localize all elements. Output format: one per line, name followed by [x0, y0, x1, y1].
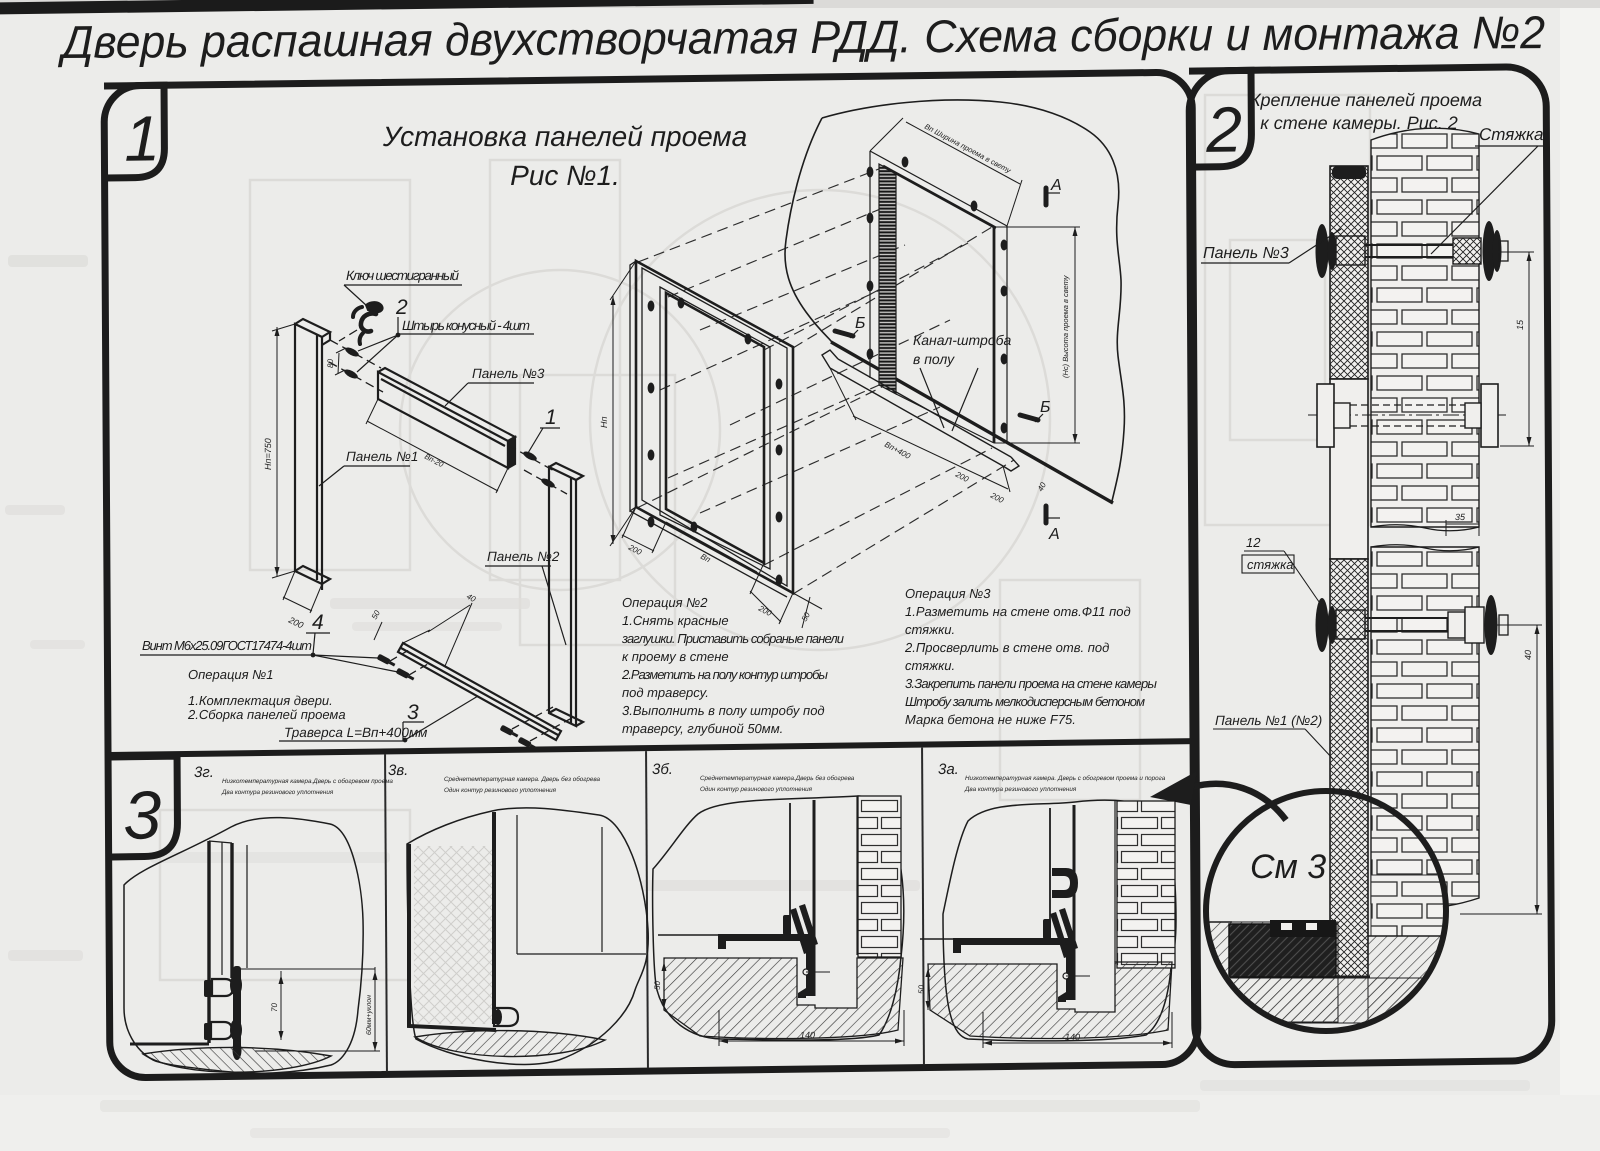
svg-text:Панель №3: Панель №3	[472, 366, 545, 381]
svg-text:Один контур резинового уплотне: Один контур резинового уплотнения	[700, 786, 813, 793]
svg-text:1.Разметить на стене отв.Ф11 п: 1.Разметить на стене отв.Ф11 под	[905, 604, 1131, 619]
svg-text:1: 1	[545, 406, 557, 429]
svg-text:Два контура резинового уплотне: Два контура резинового уплотнения	[964, 786, 1077, 793]
svg-text:3.Закрепить панели проема на с: 3.Закрепить панели проема на стене камер…	[905, 676, 1157, 691]
svg-text:Среднетемпературная камера.Две: Среднетемпературная камера.Дверь без обо…	[700, 775, 855, 782]
svg-text:заглушки. Приставить собраные: заглушки. Приставить собраные панели	[621, 631, 844, 646]
svg-text:Два контура резинового уплотне: Два контура резинового уплотнения	[221, 789, 334, 796]
svg-text:Нп: Нп	[599, 417, 609, 428]
svg-text:Панель №1 (№2): Панель №1 (№2)	[1215, 713, 1322, 728]
svg-text:1.Комплектация двери.: 1.Комплектация двери.	[188, 693, 333, 708]
svg-text:к проему в стене: к проему в стене	[622, 649, 729, 664]
svg-text:в полу: в полу	[913, 351, 955, 367]
svg-text:Установка панелей проема: Установка панелей проема	[382, 121, 747, 152]
svg-text:3.Выполнить в полу штробу под: 3.Выполнить в полу штробу под	[622, 703, 825, 718]
svg-text:стяжки.: стяжки.	[905, 622, 955, 637]
svg-text:2.Сборка панелей проема: 2.Сборка панелей проема	[187, 707, 346, 722]
svg-text:Винт М6х25.09ГОСТ17474-4шт: Винт М6х25.09ГОСТ17474-4шт	[142, 638, 312, 653]
svg-text:2: 2	[1205, 93, 1242, 165]
svg-text:Низкотемпературная камера. Две: Низкотемпературная камера. Дверь с обогр…	[965, 775, 1166, 782]
svg-text:3а.: 3а.	[938, 761, 959, 778]
svg-text:3: 3	[407, 701, 419, 724]
svg-text:Канал-штроба: Канал-штроба	[913, 332, 1012, 348]
svg-text:А: А	[1048, 526, 1060, 543]
svg-text:50: 50	[917, 985, 926, 994]
svg-text:Рис №1.: Рис №1.	[510, 160, 620, 191]
svg-text:40: 40	[1523, 650, 1533, 660]
svg-text:15: 15	[1515, 319, 1525, 330]
svg-text:Панель №2: Панель №2	[487, 549, 560, 564]
svg-text:Дверь распашная двухстворчатая: Дверь распашная двухстворчатая РДД. Схем…	[57, 6, 1545, 68]
svg-text:4: 4	[312, 611, 324, 634]
svg-text:35: 35	[1455, 512, 1466, 522]
svg-text:Среднетемпературная камера. Дв: Среднетемпературная камера. Дверь без об…	[444, 776, 601, 783]
svg-text:Панель №3: Панель №3	[1203, 245, 1289, 262]
svg-text:(Нс) Высота проема в свету: (Нс) Высота проема в свету	[1061, 274, 1070, 378]
svg-text:Штробу залить мелкодисперсным: Штробу залить мелкодисперсным бетоном	[905, 694, 1145, 709]
svg-text:3в.: 3в.	[388, 762, 408, 779]
svg-text:140: 140	[800, 1030, 815, 1040]
svg-text:траверсу, глубиной 50мм.: траверсу, глубиной 50мм.	[622, 721, 783, 736]
svg-text:Стяжка: Стяжка	[1479, 125, 1544, 144]
svg-text:Траверса L=Вп+400мм: Траверса L=Вп+400мм	[284, 725, 427, 740]
svg-text:Крепление панелей проема: Крепление панелей проема	[1250, 90, 1482, 110]
svg-text:3б.: 3б.	[652, 761, 673, 778]
svg-text:3: 3	[123, 777, 161, 853]
svg-text:60мм+уклон: 60мм+уклон	[366, 995, 373, 1035]
svg-text:стяжки.: стяжки.	[905, 658, 955, 673]
svg-text:12: 12	[1246, 535, 1261, 550]
svg-text:2.Просверлить в стене отв. п: 2.Просверлить в стене отв. под	[904, 640, 1109, 655]
svg-text:Операция №2: Операция №2	[622, 595, 708, 610]
svg-text:2: 2	[395, 296, 408, 319]
svg-text:Штырь конусный - 4шт: Штырь конусный - 4шт	[402, 318, 530, 333]
svg-text:А: А	[1050, 177, 1062, 194]
svg-text:70: 70	[270, 1003, 279, 1012]
svg-text:Панель №1: Панель №1	[346, 449, 418, 464]
svg-text:Нп=750: Нп=750	[263, 438, 273, 470]
svg-text:Б: Б	[1040, 399, 1050, 416]
svg-text:Операция №1: Операция №1	[188, 667, 273, 682]
svg-text:3г.: 3г.	[194, 764, 214, 781]
svg-text:Один контур резинового уплотне: Один контур резинового уплотнения	[444, 787, 557, 794]
svg-text:1.Снять красные: 1.Снять красные	[622, 613, 729, 628]
svg-text:стяжка: стяжка	[1247, 557, 1293, 572]
svg-text:Ключ шестигранный: Ключ шестигранный	[346, 268, 459, 283]
svg-text:50: 50	[653, 981, 662, 990]
svg-text:2.Разметить на полу контур штр: 2.Разметить на полу контур штробы	[621, 667, 828, 682]
svg-text:См 3: См 3	[1250, 848, 1326, 886]
svg-text:Б: Б	[855, 315, 865, 332]
svg-text:Операция №3: Операция №3	[905, 586, 991, 601]
svg-text:Низкотемпературная камера.Двер: Низкотемпературная камера.Дверь с обогре…	[222, 778, 393, 785]
svg-text:под траверсу.: под траверсу.	[622, 685, 709, 700]
svg-text:1: 1	[124, 102, 160, 174]
svg-text:Марка бетона не ниже F75.: Марка бетона не ниже F75.	[905, 712, 1076, 727]
svg-text:140: 140	[1065, 1032, 1080, 1042]
